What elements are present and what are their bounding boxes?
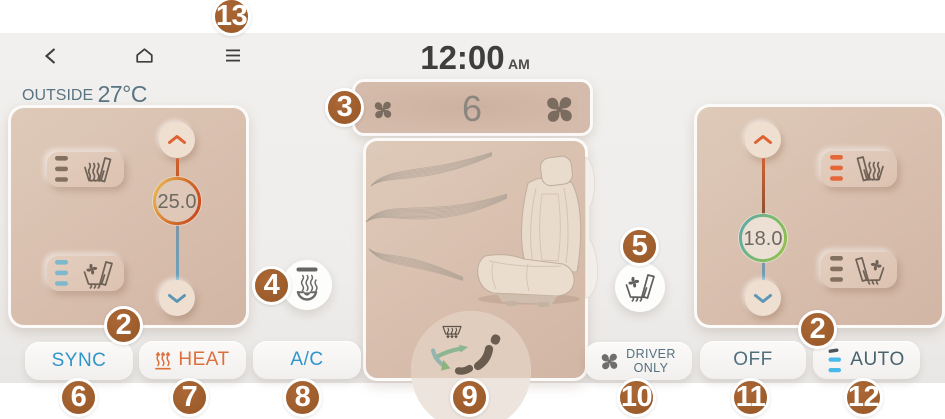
svg-text:25.0: 25.0 (158, 191, 197, 213)
svg-text:18.0: 18.0 (744, 228, 783, 250)
